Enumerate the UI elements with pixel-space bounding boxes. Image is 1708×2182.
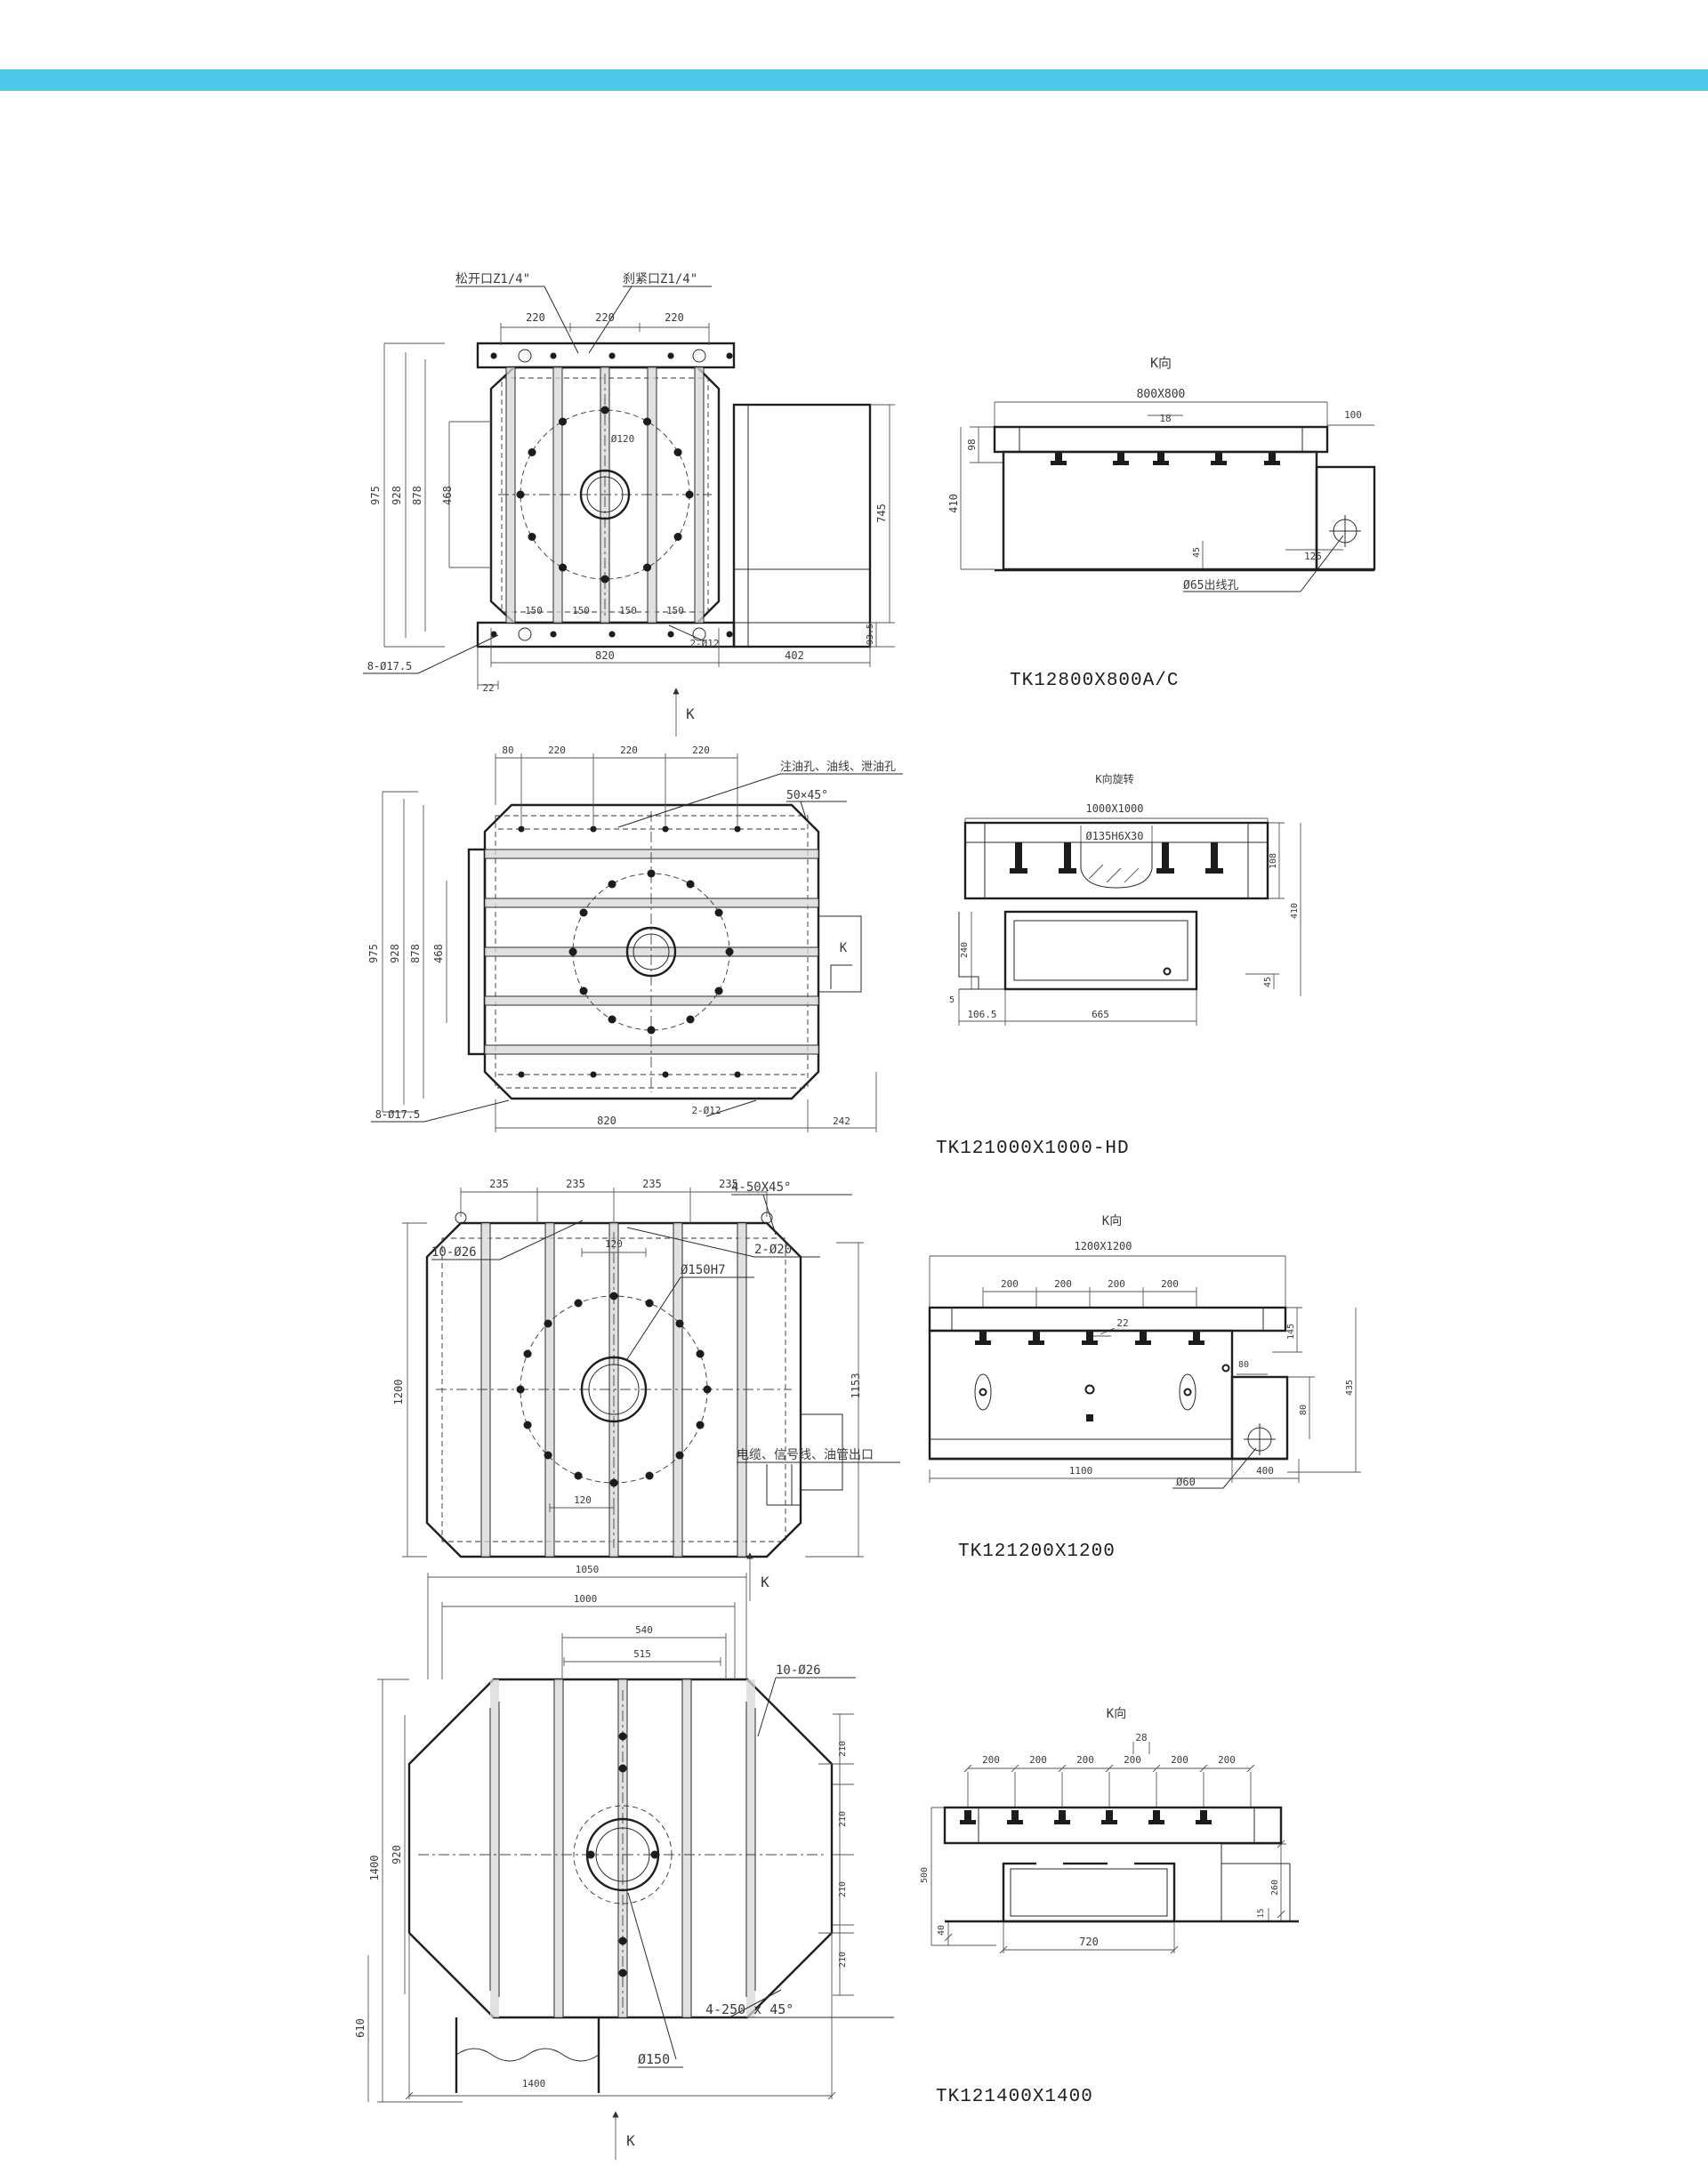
dim-label: 220: [595, 311, 615, 324]
t-slot-feet: [975, 1331, 1204, 1345]
fig4-kview-body: [1003, 1864, 1174, 1921]
dim-label: 45: [1192, 547, 1202, 558]
dim-label: 210: [838, 1741, 848, 1757]
t-slot-feet: [960, 1810, 1212, 1824]
dim-label: 80: [1238, 1360, 1249, 1370]
dim-label: 200: [982, 1754, 1000, 1766]
dim-label: 1100: [1069, 1465, 1093, 1477]
dim-label: 1200: [392, 1380, 405, 1405]
dim-label: 500: [920, 1867, 930, 1883]
dim-label: Ø135H6X30: [1085, 830, 1143, 842]
dim-label: 200: [1029, 1754, 1047, 1766]
dim-label: 18: [1159, 413, 1171, 424]
fig4-plan-view: [368, 1573, 894, 2160]
fig3-kview-plate: [930, 1308, 1285, 1331]
dim-label: 200: [1124, 1754, 1141, 1766]
dim-label: 2-Ø12: [691, 1105, 721, 1116]
dim-label: 878: [409, 944, 422, 963]
kview-title: K向: [1150, 355, 1172, 371]
dim-label: 200: [1054, 1278, 1072, 1290]
dim-label: 745: [875, 503, 888, 523]
dim-label: 515: [633, 1648, 651, 1660]
dim-label: 10-Ø26: [431, 1245, 477, 1260]
label-cable-outlet: 电缆、信号线、油管出口: [737, 1448, 874, 1462]
dim-label: 410: [947, 494, 960, 513]
fig1-side-body: [734, 405, 870, 647]
dim-label: 1000X1000: [1085, 802, 1143, 815]
dim-label: 800X800: [1137, 388, 1186, 401]
dim-label: 820: [597, 1115, 616, 1127]
dim-label: 878: [411, 486, 423, 505]
fig1-top-flange: [478, 343, 734, 367]
dim-label: 720: [1079, 1936, 1099, 1948]
fig1-k-view: [961, 402, 1374, 592]
dim-label: 820: [595, 649, 615, 662]
dim-label: 22: [482, 682, 494, 694]
dim-label: 120: [605, 1238, 623, 1250]
dim-label: 200: [1218, 1754, 1236, 1766]
figure-title: TK121200X1200: [958, 1542, 1116, 1562]
dim-label: 242: [833, 1115, 850, 1127]
dim-label: 1200X1200: [1074, 1240, 1132, 1252]
dim-label: 210: [838, 1952, 848, 1968]
dim-label: 8-Ø17.5: [367, 660, 413, 672]
dim-label: 220: [665, 311, 684, 324]
dim-label: 400: [1256, 1465, 1274, 1477]
dim-label: 150: [525, 605, 543, 616]
dim-label: 200: [1161, 1278, 1179, 1290]
dim-label: 5: [949, 995, 955, 1005]
dim-label: 410: [1290, 903, 1300, 919]
fig1-kview-body: [1003, 452, 1317, 569]
dim-label: 1400: [522, 2078, 546, 2089]
dim-label: 2-Ø12: [689, 638, 719, 649]
figure-title: TK12800X800A/C: [1010, 671, 1179, 691]
view-arrow-k: K: [761, 1574, 769, 1590]
label-unclamp-port: 松开口Z1/4": [455, 272, 530, 286]
dim-label: 1000: [574, 1593, 598, 1605]
dim-label: 10-Ø26: [776, 1663, 821, 1678]
dim-label: 610: [354, 2018, 367, 2038]
dim-label: 200: [1076, 1754, 1094, 1766]
dim-label: 235: [489, 1178, 509, 1190]
dim-label: 200: [1108, 1278, 1125, 1290]
t-slot-feet: [1010, 842, 1223, 874]
dim-label: 150: [572, 605, 590, 616]
engineering-drawing-canvas: 松开口Z1/4"刹紧口Z1/4"220220220975928878468150…: [0, 0, 1708, 2182]
dim-label: 1400: [368, 1856, 381, 1881]
dim-label: 928: [389, 944, 401, 963]
dim-label: 928: [391, 486, 403, 505]
view-arrow-k: K: [626, 2132, 635, 2149]
dim-label: 100: [1344, 409, 1362, 421]
dim-label: 240: [960, 942, 970, 958]
dim-label: 200: [1171, 1754, 1188, 1766]
figure-title: TK121400X1400: [936, 2087, 1093, 2107]
fig2-kview-body: [1005, 912, 1196, 989]
dim-label: 920: [391, 1845, 403, 1864]
dim-label: Ø120: [611, 433, 635, 445]
dim-label: 80: [502, 745, 513, 756]
view-arrow-k: K: [840, 941, 848, 955]
dim-label: Ø60: [1176, 1476, 1196, 1488]
dim-label: 150: [666, 605, 684, 616]
dim-label: 80: [1299, 1405, 1309, 1415]
dim-label: 210: [838, 1811, 848, 1827]
dim-label: 540: [635, 1624, 653, 1636]
kview-title: K向: [1107, 1707, 1126, 1721]
dim-label: 22: [1116, 1317, 1128, 1329]
label-oil-holes: 注油孔、油线、泄油孔: [780, 761, 896, 774]
dim-label: 260: [1270, 1880, 1280, 1896]
dim-label: 93.5: [866, 624, 875, 645]
dim-label: 235: [566, 1178, 585, 1190]
center-recess: [1081, 842, 1152, 888]
fig1-plan-view: [363, 286, 895, 737]
dim-label: Ø150H7: [681, 1263, 726, 1277]
break-line: [456, 2049, 599, 2061]
dim-label: 145: [1286, 1324, 1296, 1340]
fig2-k-view: [959, 818, 1301, 1026]
dim-label: 120: [574, 1494, 592, 1506]
dimension-labels: 松开口Z1/4"刹紧口Z1/4"220220220975928878468150…: [354, 272, 1362, 2149]
fig4-k-view: [931, 1742, 1299, 1953]
dim-label: 220: [620, 745, 638, 756]
dim-label: 4-250 x 45°: [705, 2001, 794, 2017]
dim-label: 28: [1135, 1732, 1147, 1743]
label-cable-hole: Ø65出线孔: [1183, 579, 1238, 592]
dim-label: 220: [526, 311, 545, 324]
flange-bolt-dots: [494, 356, 729, 634]
dim-label: 468: [441, 486, 454, 505]
fig2-plan-view: [371, 753, 903, 1132]
dim-label: 1153: [850, 1373, 862, 1399]
t-slot-feet: [1051, 452, 1280, 465]
dim-label: 50×45°: [786, 789, 828, 802]
dim-label: 200: [1001, 1278, 1019, 1290]
catalog-page: 松开口Z1/4"刹紧口Z1/4"220220220975928878468150…: [0, 0, 1708, 2182]
dim-label: 468: [432, 944, 445, 963]
dim-label: 8-Ø17.5: [375, 1108, 421, 1121]
kview-title: K向: [1102, 1214, 1122, 1228]
dim-label: 40: [937, 1925, 947, 1936]
dim-label: 108: [1269, 853, 1278, 869]
figure-title: TK121000X1000-HD: [936, 1139, 1130, 1159]
dim-label: 210: [838, 1881, 848, 1897]
dim-label: 435: [1345, 1380, 1355, 1396]
fig2-left-bar: [469, 849, 485, 1054]
dim-label: 150: [619, 605, 637, 616]
dim-label: 235: [642, 1178, 662, 1190]
dim-label: 106.5: [967, 1009, 996, 1020]
view-arrow-k: K: [686, 705, 695, 722]
kview-title: K向旋转: [1095, 772, 1133, 785]
label-clamp-port: 刹紧口Z1/4": [623, 272, 697, 286]
dim-label: 98: [966, 439, 978, 450]
dim-label: 975: [369, 486, 382, 505]
dim-label: 15: [1257, 1909, 1266, 1919]
dim-label: 125: [1304, 551, 1322, 562]
dim-label: Ø150: [638, 2051, 670, 2067]
dim-label: 220: [692, 745, 710, 756]
fig3-plan-view: [402, 1188, 900, 1601]
dim-label: 4-50X45°: [731, 1180, 791, 1195]
fig3-k-view: [930, 1256, 1361, 1488]
dim-label: 2-Ø20: [754, 1243, 792, 1257]
dim-label: 220: [548, 745, 566, 756]
dim-label: 975: [367, 944, 380, 963]
fig2-t-slots: [485, 849, 818, 1054]
dim-label: 1050: [576, 1564, 600, 1575]
fig1-kview-plate: [995, 427, 1327, 452]
dim-label: 665: [1092, 1009, 1109, 1020]
dim-label: 402: [785, 649, 804, 662]
dim-label: 45: [1263, 977, 1273, 987]
